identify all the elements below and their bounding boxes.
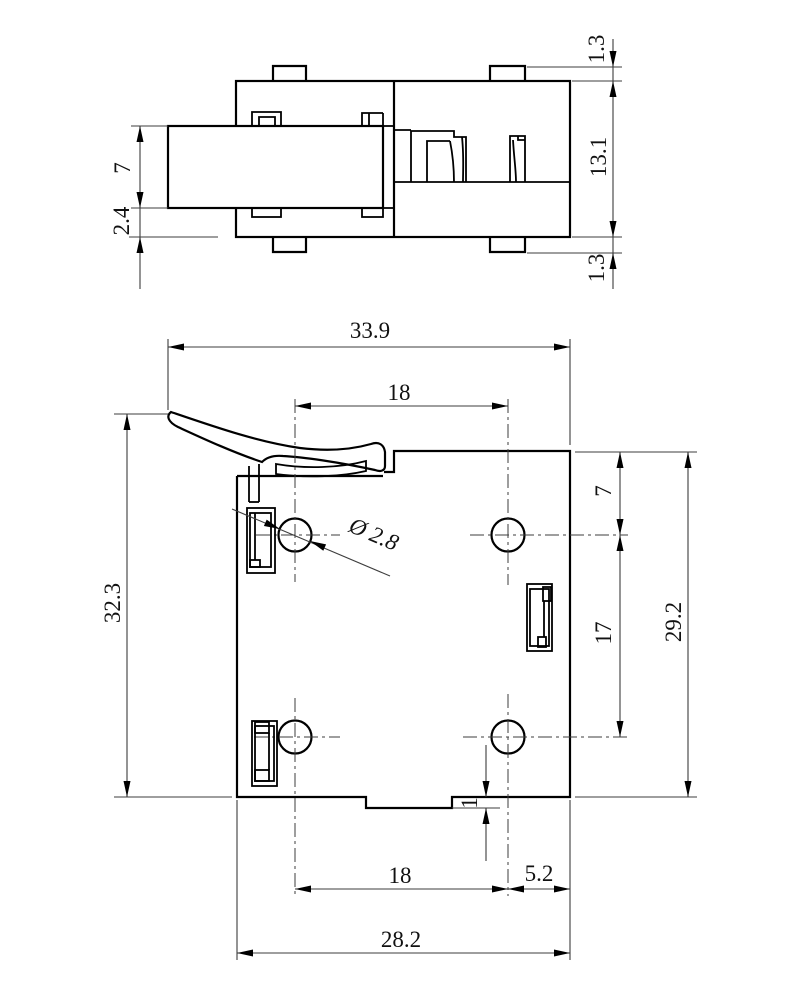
engineering-drawing-canvas: 7 2.4 1.3 13.1 1.3 [0, 0, 800, 1000]
side-slide-bolt [168, 126, 383, 208]
dim-overall-height-label: 32.3 [100, 583, 125, 623]
side-hook1-flex-curve [450, 141, 454, 182]
plan-view-dims: 33.9 18 32.3 29.2 7 17 Ø 2.8 [100, 318, 697, 960]
plan-release-lever [168, 412, 385, 471]
plan-slot-right-middle [527, 584, 552, 651]
side-boss-top-left [273, 66, 306, 81]
dim-top-edge-to-hole-label: 7 [591, 485, 616, 497]
side-clip-top-left-inner [259, 117, 275, 126]
side-view [168, 66, 570, 252]
side-hook1-inner-notch [427, 141, 450, 182]
side-boss-bottom-right [490, 237, 525, 252]
dim-body-width-label: 28.2 [381, 927, 421, 952]
plan-lever-slot [276, 461, 366, 476]
dim-bolt-height-label: 7 [110, 162, 135, 174]
dim-hole-pitch-vertical-label: 17 [591, 622, 616, 645]
side-clip-bottom-left [252, 208, 281, 217]
two-view-drawing: 7 2.4 1.3 13.1 1.3 [0, 0, 800, 1000]
dim-hole-pitch-bottom-label: 18 [389, 863, 412, 888]
side-clip-bottom-right [362, 208, 383, 217]
side-hook2-outline [510, 136, 525, 182]
side-boss-top-right [490, 66, 525, 81]
dim-body-height-plan-label: 29.2 [661, 602, 686, 642]
dim-hole-to-right-edge-label: 5.2 [525, 861, 554, 886]
plan-slot-top-left [247, 508, 275, 573]
side-clip-top-right [362, 113, 383, 126]
dim-body-height-side-label: 13.1 [586, 137, 611, 177]
dim-overall-width-label: 33.9 [350, 318, 390, 343]
side-boss-bottom-left [273, 237, 306, 252]
side-clip-top-left [252, 112, 281, 126]
side-hook1-outline [411, 131, 466, 182]
dim-boss-bottom-label: 1.3 [584, 254, 609, 283]
dim-hole-pitch-top-label: 18 [388, 380, 411, 405]
side-view-dims-right: 1.3 13.1 1.3 [527, 35, 622, 289]
side-hook1-right-curve [462, 137, 463, 182]
dim-hole-diameter-label: Ø 2.8 [345, 512, 403, 556]
dim-tab-depth-label: 1 [457, 797, 482, 809]
dim-bolt-to-bottom-label: 2.4 [109, 206, 134, 235]
side-hook2-flex-curve [513, 140, 516, 182]
plan-body-outline [237, 451, 570, 808]
plan-slot-bottom-left [252, 721, 277, 786]
dim-boss-top-label: 1.3 [584, 35, 609, 64]
